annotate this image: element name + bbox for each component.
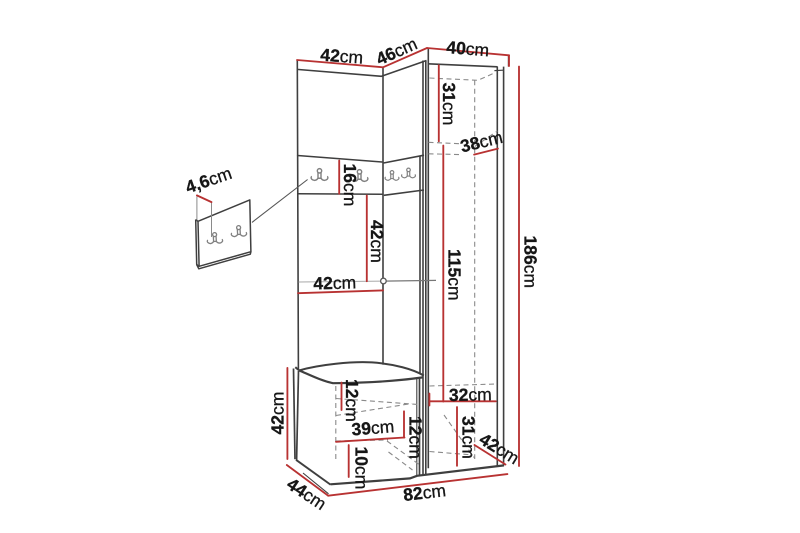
svg-text:32cm: 32cm (449, 384, 492, 405)
svg-text:31cm: 31cm (459, 416, 479, 459)
svg-text:16cm: 16cm (340, 164, 360, 207)
svg-text:186cm: 186cm (521, 236, 541, 289)
svg-text:10cm: 10cm (352, 447, 372, 490)
svg-text:40cm: 40cm (446, 37, 490, 60)
svg-text:12cm: 12cm (406, 416, 426, 459)
svg-text:115cm: 115cm (445, 249, 465, 301)
svg-text:12cm: 12cm (342, 379, 362, 422)
svg-text:42cm: 42cm (313, 272, 356, 293)
svg-text:31cm: 31cm (439, 83, 459, 126)
svg-text:39cm: 39cm (351, 416, 395, 439)
svg-text:42cm: 42cm (320, 45, 364, 68)
svg-text:42cm: 42cm (367, 220, 387, 263)
svg-text:42cm: 42cm (268, 392, 288, 435)
